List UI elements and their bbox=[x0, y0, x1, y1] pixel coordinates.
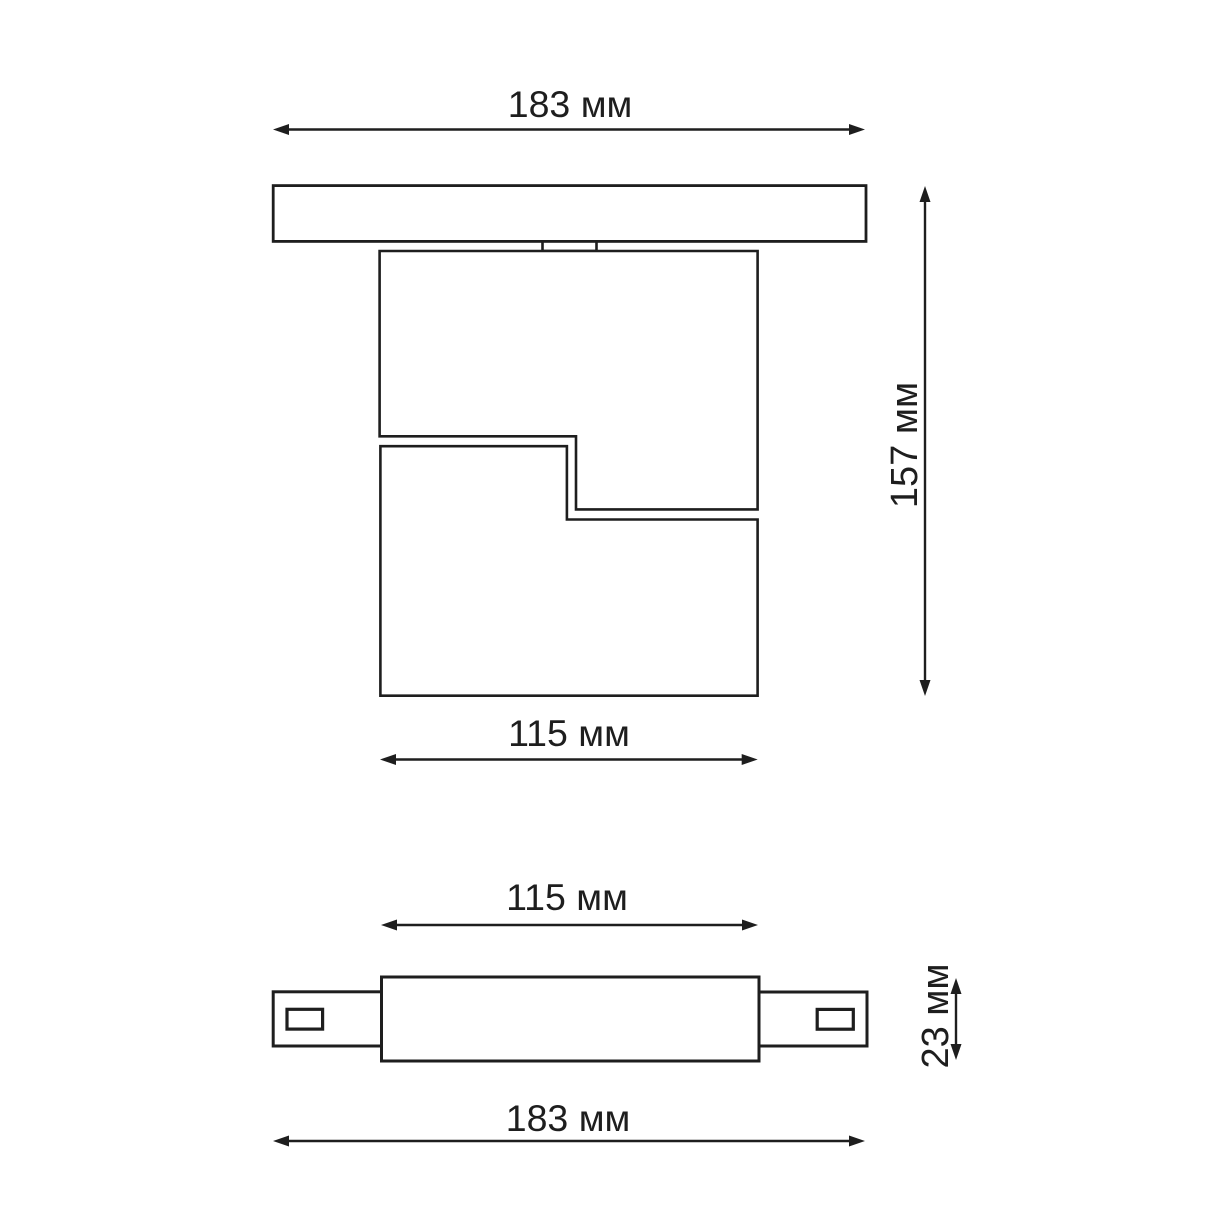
svg-text:115 мм: 115 мм bbox=[506, 876, 628, 918]
svg-text:157 мм: 157 мм bbox=[884, 382, 926, 508]
svg-text:183 мм: 183 мм bbox=[508, 83, 633, 125]
svg-text:23 мм: 23 мм bbox=[915, 963, 957, 1068]
svg-text:115 мм: 115 мм bbox=[508, 712, 630, 754]
svg-text:183 мм: 183 мм bbox=[506, 1097, 631, 1139]
